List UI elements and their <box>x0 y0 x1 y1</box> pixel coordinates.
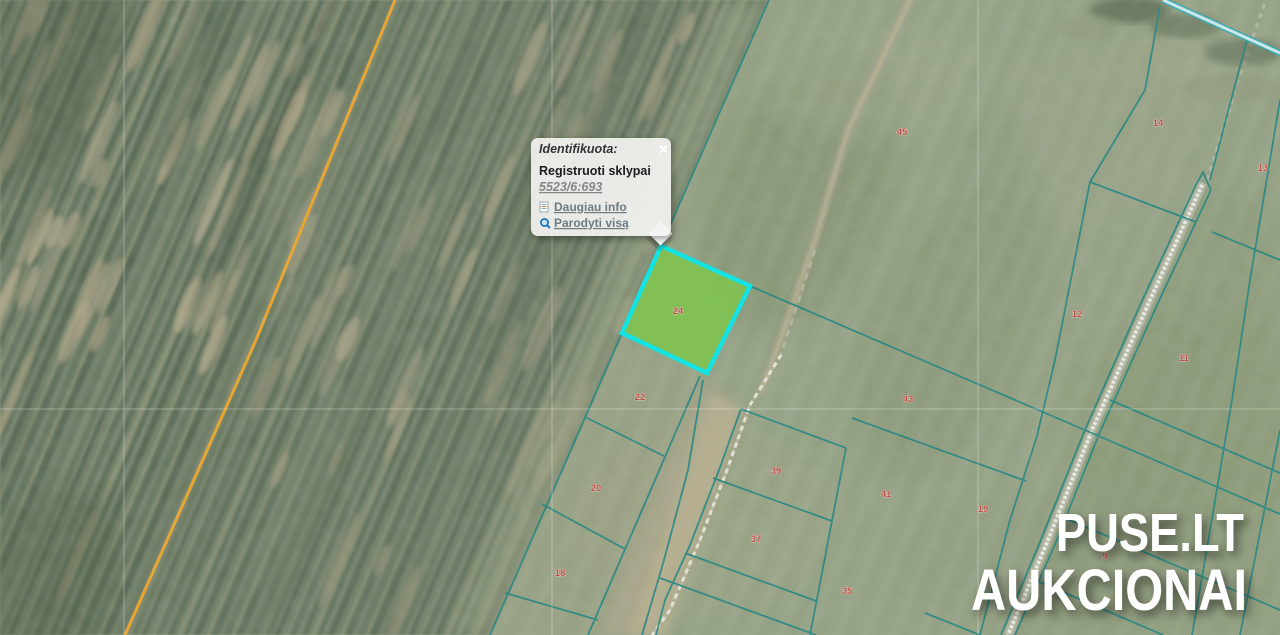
svg-text:20: 20 <box>591 483 602 494</box>
svg-text:PUSE.LT: PUSE.LT <box>1056 502 1244 563</box>
svg-text:24: 24 <box>673 306 684 317</box>
svg-text:37: 37 <box>751 534 762 545</box>
svg-text:AUKCIONAI: AUKCIONAI <box>971 559 1247 623</box>
svg-text:43: 43 <box>903 394 914 405</box>
svg-text:11: 11 <box>1179 353 1190 364</box>
svg-text:12: 12 <box>1072 309 1083 320</box>
svg-text:22: 22 <box>635 392 646 403</box>
svg-text:39: 39 <box>771 466 782 477</box>
svg-text:35: 35 <box>842 586 853 597</box>
svg-text:41: 41 <box>881 489 892 500</box>
svg-text:19: 19 <box>978 504 989 515</box>
svg-text:✕: ✕ <box>658 142 669 157</box>
svg-text:5523/6:693: 5523/6:693 <box>539 180 602 194</box>
svg-text:14: 14 <box>1153 118 1164 129</box>
svg-text:13: 13 <box>1258 163 1269 174</box>
svg-text:Registruoti sklypai: Registruoti sklypai <box>539 164 651 178</box>
svg-text:Daugiau info: Daugiau info <box>554 200 627 214</box>
svg-text:Parodyti visą: Parodyti visą <box>554 216 629 230</box>
svg-text:18: 18 <box>555 568 566 579</box>
svg-text:45: 45 <box>897 127 908 138</box>
svg-text:Identifikuota:: Identifikuota: <box>539 142 617 156</box>
